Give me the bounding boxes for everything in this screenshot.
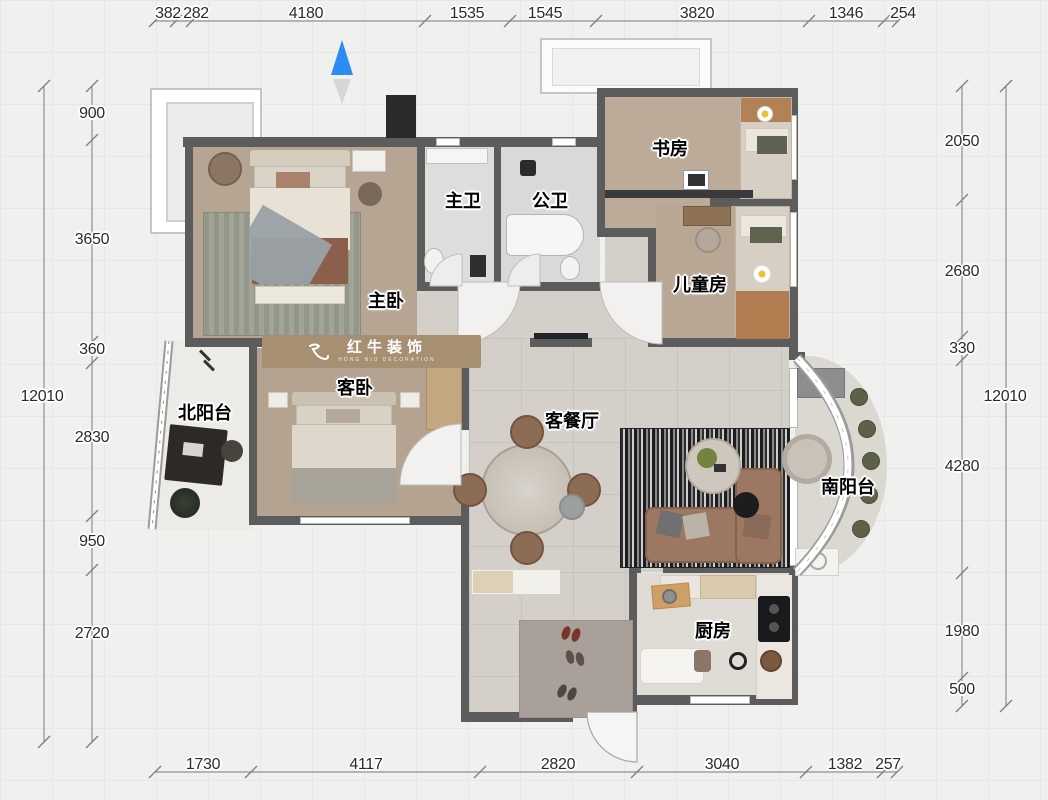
- kids-bed-green-pillow: [750, 227, 782, 243]
- room-label-study: 书房: [652, 135, 688, 161]
- kitchen-pot: [729, 652, 747, 670]
- wall-study-top: [597, 88, 793, 97]
- room-label-south-balcony: 南阳台: [821, 473, 875, 499]
- guest-bed-accent-pillow: [326, 409, 360, 423]
- dim-bottom-2: 4117: [349, 756, 382, 774]
- guest-bed-duvet: [292, 425, 396, 473]
- wall-guest-left: [249, 345, 257, 525]
- master-bath-fixture: [470, 255, 486, 277]
- master-bed: [250, 150, 350, 284]
- dim-right-4: 4280: [945, 458, 979, 476]
- dim-left-total: 12010: [21, 388, 64, 406]
- study-bed: [740, 97, 792, 199]
- dim-top-3: 4180: [289, 5, 323, 23]
- dim-right-3: 330: [949, 340, 975, 358]
- kids-bed: [735, 206, 790, 338]
- room-label-kitchen: 厨房: [695, 617, 731, 643]
- study-monitor: [683, 170, 709, 190]
- top-cabinet-block: [386, 95, 416, 138]
- coffee-table-book: [714, 464, 726, 472]
- brand-plaque: 红牛装饰 HONG NIU DECORATION: [262, 335, 481, 368]
- room-label-master-bath: 主卫: [445, 187, 481, 213]
- dim-top-7: 1346: [829, 5, 863, 23]
- room-label-north-balcony: 北阳台: [178, 399, 232, 425]
- wall-tv-stub: [530, 338, 592, 347]
- floor-plan-canvas: 红牛装饰 HONG NIU DECORATION 主卧 客卧 主卫 公卫 书房 …: [0, 0, 1048, 800]
- dim-top-6: 3820: [680, 5, 714, 23]
- dim-right-5: 1980: [945, 623, 979, 641]
- kitchen-cooktop: [758, 596, 790, 642]
- balcony-plant-2: [858, 420, 876, 438]
- sofa-pillow-gray: [656, 510, 684, 538]
- master-bed-headboard: [250, 150, 350, 166]
- dining-chair-top: [510, 415, 544, 449]
- wall-kids-bottom: [648, 338, 798, 347]
- guest-nightstand-right: [400, 392, 420, 408]
- balcony-plant-5: [852, 520, 870, 538]
- wall-master-left: [185, 137, 193, 345]
- kids-chair: [695, 227, 721, 253]
- brand-tagline: HONG NIU DECORATION: [338, 358, 435, 363]
- brand-name: 红牛装饰: [347, 340, 427, 355]
- balcony-plant-1: [850, 388, 868, 406]
- guest-bottom-window: [300, 517, 410, 524]
- room-label-master-bedroom: 主卧: [368, 287, 404, 313]
- dim-bottom-5: 1382: [828, 756, 862, 774]
- kitchen-cabinet-beige: [700, 575, 756, 599]
- tv: [534, 333, 588, 339]
- dim-right-6: 500: [949, 681, 975, 699]
- master-bath-sink: [426, 148, 488, 164]
- dim-right-2: 2680: [945, 263, 979, 281]
- dim-top-1: 382: [155, 5, 181, 23]
- floor-lamp: [733, 492, 759, 518]
- north-balcony-plant: [170, 488, 200, 518]
- master-bench: [255, 286, 345, 304]
- dim-left-1: 900: [79, 105, 105, 123]
- kitchen-bin: [694, 650, 711, 672]
- dining-chair-left: [453, 473, 487, 507]
- kids-right-window: [790, 212, 797, 287]
- room-label-kids-room: 儿童房: [673, 271, 727, 297]
- public-bath-window: [552, 138, 576, 146]
- room-label-guest-bedroom: 客卧: [337, 374, 373, 400]
- study-bay-window-inner: [552, 48, 700, 86]
- guest-bed-blanket: [292, 468, 396, 504]
- wall-bath-divider: [494, 140, 501, 290]
- master-chair: [208, 152, 242, 186]
- kitchen-skillet: [760, 650, 782, 672]
- dim-bottom-1: 1730: [186, 756, 220, 774]
- master-nightstand: [352, 150, 386, 172]
- guest-bed: [292, 392, 396, 504]
- master-bath-toilet: [424, 248, 444, 274]
- corridor-floor: [605, 237, 648, 297]
- north-arrow-reflection: [333, 79, 351, 104]
- dim-bottom-6: 257: [875, 756, 901, 774]
- master-pouf: [358, 182, 382, 206]
- cooktop-burner-2: [769, 622, 779, 632]
- master-bed-accent-pillow: [276, 172, 310, 188]
- daisy-pillow-icon: [757, 106, 773, 122]
- dim-top-2: 282: [183, 5, 209, 23]
- dim-right-1: 2050: [945, 133, 979, 151]
- kitchen-pan: [662, 589, 677, 604]
- cooktop-burner: [769, 604, 779, 614]
- room-label-public-bath: 公卫: [532, 187, 568, 213]
- dim-bottom-3: 2820: [541, 756, 575, 774]
- dining-chair-bottom: [510, 531, 544, 565]
- sofa-pillow-beige: [682, 512, 710, 540]
- wall-entry-left: [461, 480, 469, 722]
- master-bath-window: [436, 138, 460, 146]
- north-arrow-icon: [331, 40, 353, 75]
- kids-desk: [683, 206, 731, 226]
- north-balcony-chair: [221, 440, 243, 462]
- study-desk: [605, 190, 753, 198]
- wall-top-main: [183, 137, 603, 147]
- dim-left-6: 2720: [75, 625, 109, 643]
- washing-machine-drum: [809, 552, 827, 570]
- south-balcony-table: [797, 368, 845, 398]
- wall-bath-left: [417, 145, 425, 291]
- study-bed-green-pillow: [757, 136, 787, 154]
- dining-table: [481, 444, 573, 536]
- room-label-living-dining: 客餐厅: [545, 407, 599, 433]
- daisy-blanket-icon: [753, 265, 771, 283]
- dim-left-3: 360: [79, 341, 105, 359]
- wall-balcony-cap-top: [789, 352, 805, 359]
- public-bath-toilet: [560, 256, 580, 280]
- dim-left-4: 2830: [75, 429, 109, 447]
- dining-side-table: [559, 494, 585, 520]
- wall-kids-left: [648, 228, 656, 346]
- brand-text: 红牛装饰 HONG NIU DECORATION: [338, 340, 435, 363]
- kids-bed-blanket: [736, 291, 789, 339]
- guest-nightstand-left: [268, 392, 288, 408]
- dim-top-5: 1545: [528, 5, 562, 23]
- public-bath-sink: [520, 160, 536, 176]
- dim-left-5: 950: [79, 533, 105, 551]
- wall-bath-bottom: [417, 282, 607, 291]
- public-bath-tub: [506, 214, 584, 256]
- dim-bottom-4: 3040: [705, 756, 739, 774]
- wall-study-kids-right: [710, 198, 789, 206]
- dim-right-total: 12010: [984, 388, 1027, 406]
- wall-study-left: [597, 88, 605, 237]
- dim-top-8: 254: [890, 5, 916, 23]
- balcony-plant-3: [862, 452, 880, 470]
- hallway-floor: [417, 291, 648, 338]
- bull-logo-icon: [307, 342, 331, 362]
- north-balcony-paper: [182, 442, 203, 457]
- dim-left-2: 3650: [75, 231, 109, 249]
- study-monitor-screen: [688, 174, 705, 186]
- shoe-cabinet-beige: [473, 571, 513, 593]
- dim-top-4: 1535: [450, 5, 484, 23]
- kitchen-window: [690, 696, 750, 704]
